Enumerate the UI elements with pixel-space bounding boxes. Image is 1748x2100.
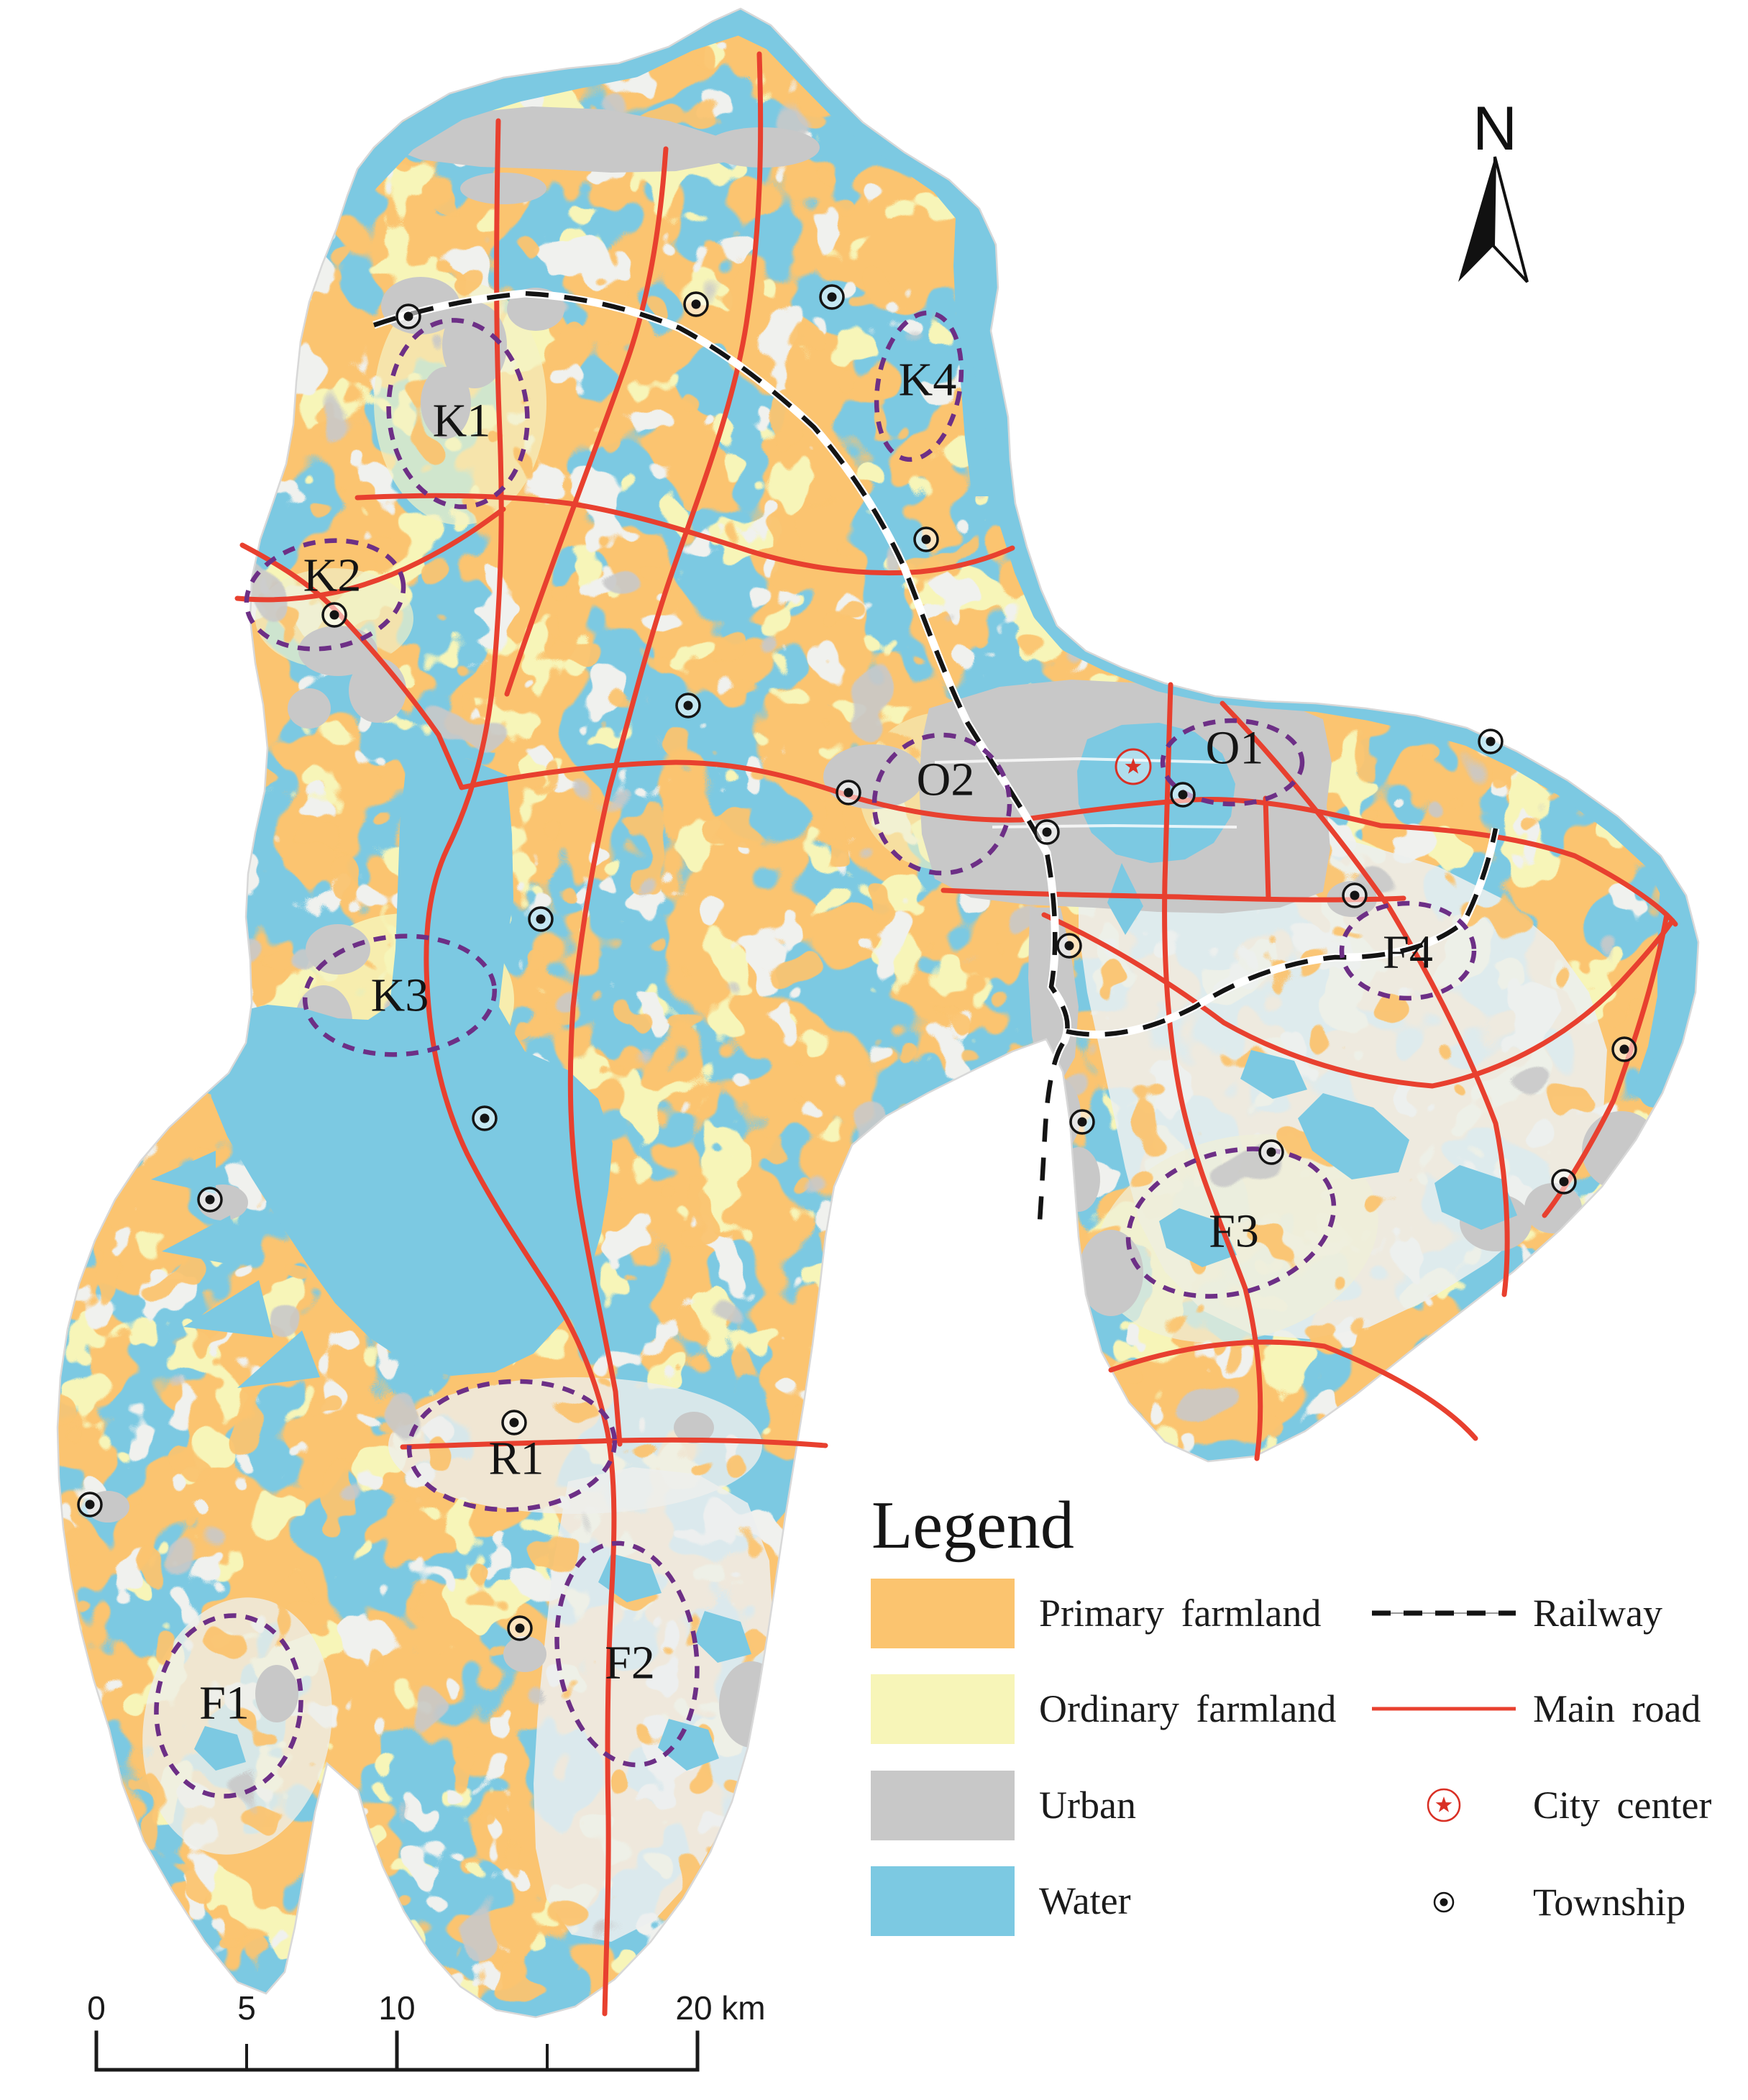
legend: Legend Primary farmland Ordinary farmlan… <box>871 1488 1711 1936</box>
city-center-marker <box>1116 749 1150 784</box>
township-marker <box>1479 730 1502 753</box>
zone-label-K3: K3 <box>371 969 429 1022</box>
township-marker <box>837 781 860 804</box>
scale-label-0: 0 <box>87 1989 106 2027</box>
legend-swatch-primary-farmland <box>871 1579 1015 1648</box>
township-marker <box>1613 1038 1636 1061</box>
city-center <box>1116 749 1150 784</box>
legend-label-primary-farmland: Primary farmland <box>1039 1592 1321 1635</box>
zone-label-F2: F2 <box>605 1637 655 1689</box>
legend-label-water: Water <box>1039 1879 1131 1922</box>
legend-label-ordinary-farmland: Ordinary farmland <box>1039 1687 1336 1730</box>
zone-label-F3: F3 <box>1209 1205 1259 1258</box>
north-arrow-left <box>1458 157 1495 282</box>
scale-label-10: 10 <box>378 1989 415 2027</box>
legend-swatch-urban <box>871 1771 1015 1840</box>
map-canvas: K1K2K3K4O1O2F4F3R1F1F2 N Legend Primary … <box>0 0 1748 2100</box>
zone-label-F4: F4 <box>1383 926 1433 979</box>
zone-label-O2: O2 <box>917 754 975 806</box>
township-marker <box>1058 934 1081 957</box>
township-marker <box>397 305 420 328</box>
township-marker <box>78 1493 101 1516</box>
legend-title: Legend <box>871 1488 1074 1563</box>
legend-label-railway: Railway <box>1533 1592 1662 1635</box>
legend-swatch-water <box>871 1866 1015 1936</box>
township-marker <box>1343 884 1366 907</box>
township-marker <box>198 1188 221 1211</box>
township-marker <box>503 1411 526 1434</box>
map-figure: K1K2K3K4O1O2F4F3R1F1F2 N Legend Primary … <box>0 0 1748 2100</box>
legend-label-township: Township <box>1533 1881 1685 1924</box>
township-marker <box>508 1617 531 1640</box>
north-arrow-right <box>1493 157 1527 282</box>
township-marker <box>529 908 552 931</box>
main-road-path <box>1266 798 1268 899</box>
township-marker <box>473 1107 496 1130</box>
township-marker <box>685 293 708 316</box>
scale-label-20km: 20 km <box>675 1989 765 2027</box>
township-marker <box>323 603 346 626</box>
township-marker <box>1171 783 1194 806</box>
zone-label-O1: O1 <box>1206 722 1264 775</box>
scale-bar: 0 5 10 20 km <box>87 1989 765 2070</box>
zone-label-K2: K2 <box>303 549 362 602</box>
north-arrow-label: N <box>1473 94 1517 163</box>
township-marker <box>1260 1141 1283 1164</box>
north-arrow: N <box>1458 94 1527 282</box>
zone-label-K4: K4 <box>899 354 957 406</box>
township-marker <box>1035 821 1058 844</box>
township-marker <box>915 528 938 551</box>
township-marker <box>1071 1110 1094 1133</box>
zone-label-R1: R1 <box>488 1433 544 1485</box>
township-symbol <box>1434 1893 1453 1912</box>
legend-label-main-road: Main road <box>1533 1687 1701 1730</box>
legend-swatch-ordinary-farmland <box>871 1674 1015 1744</box>
legend-label-city-center: City center <box>1533 1784 1711 1827</box>
legend-label-urban: Urban <box>1039 1784 1136 1827</box>
township-marker <box>677 694 700 717</box>
scale-label-5: 5 <box>237 1989 256 2027</box>
zone-label-F1: F1 <box>199 1677 250 1730</box>
township-marker <box>820 286 843 309</box>
city-center-symbol <box>1428 1789 1460 1821</box>
zone-label-K1: K1 <box>433 395 491 447</box>
township-marker <box>1552 1170 1575 1193</box>
